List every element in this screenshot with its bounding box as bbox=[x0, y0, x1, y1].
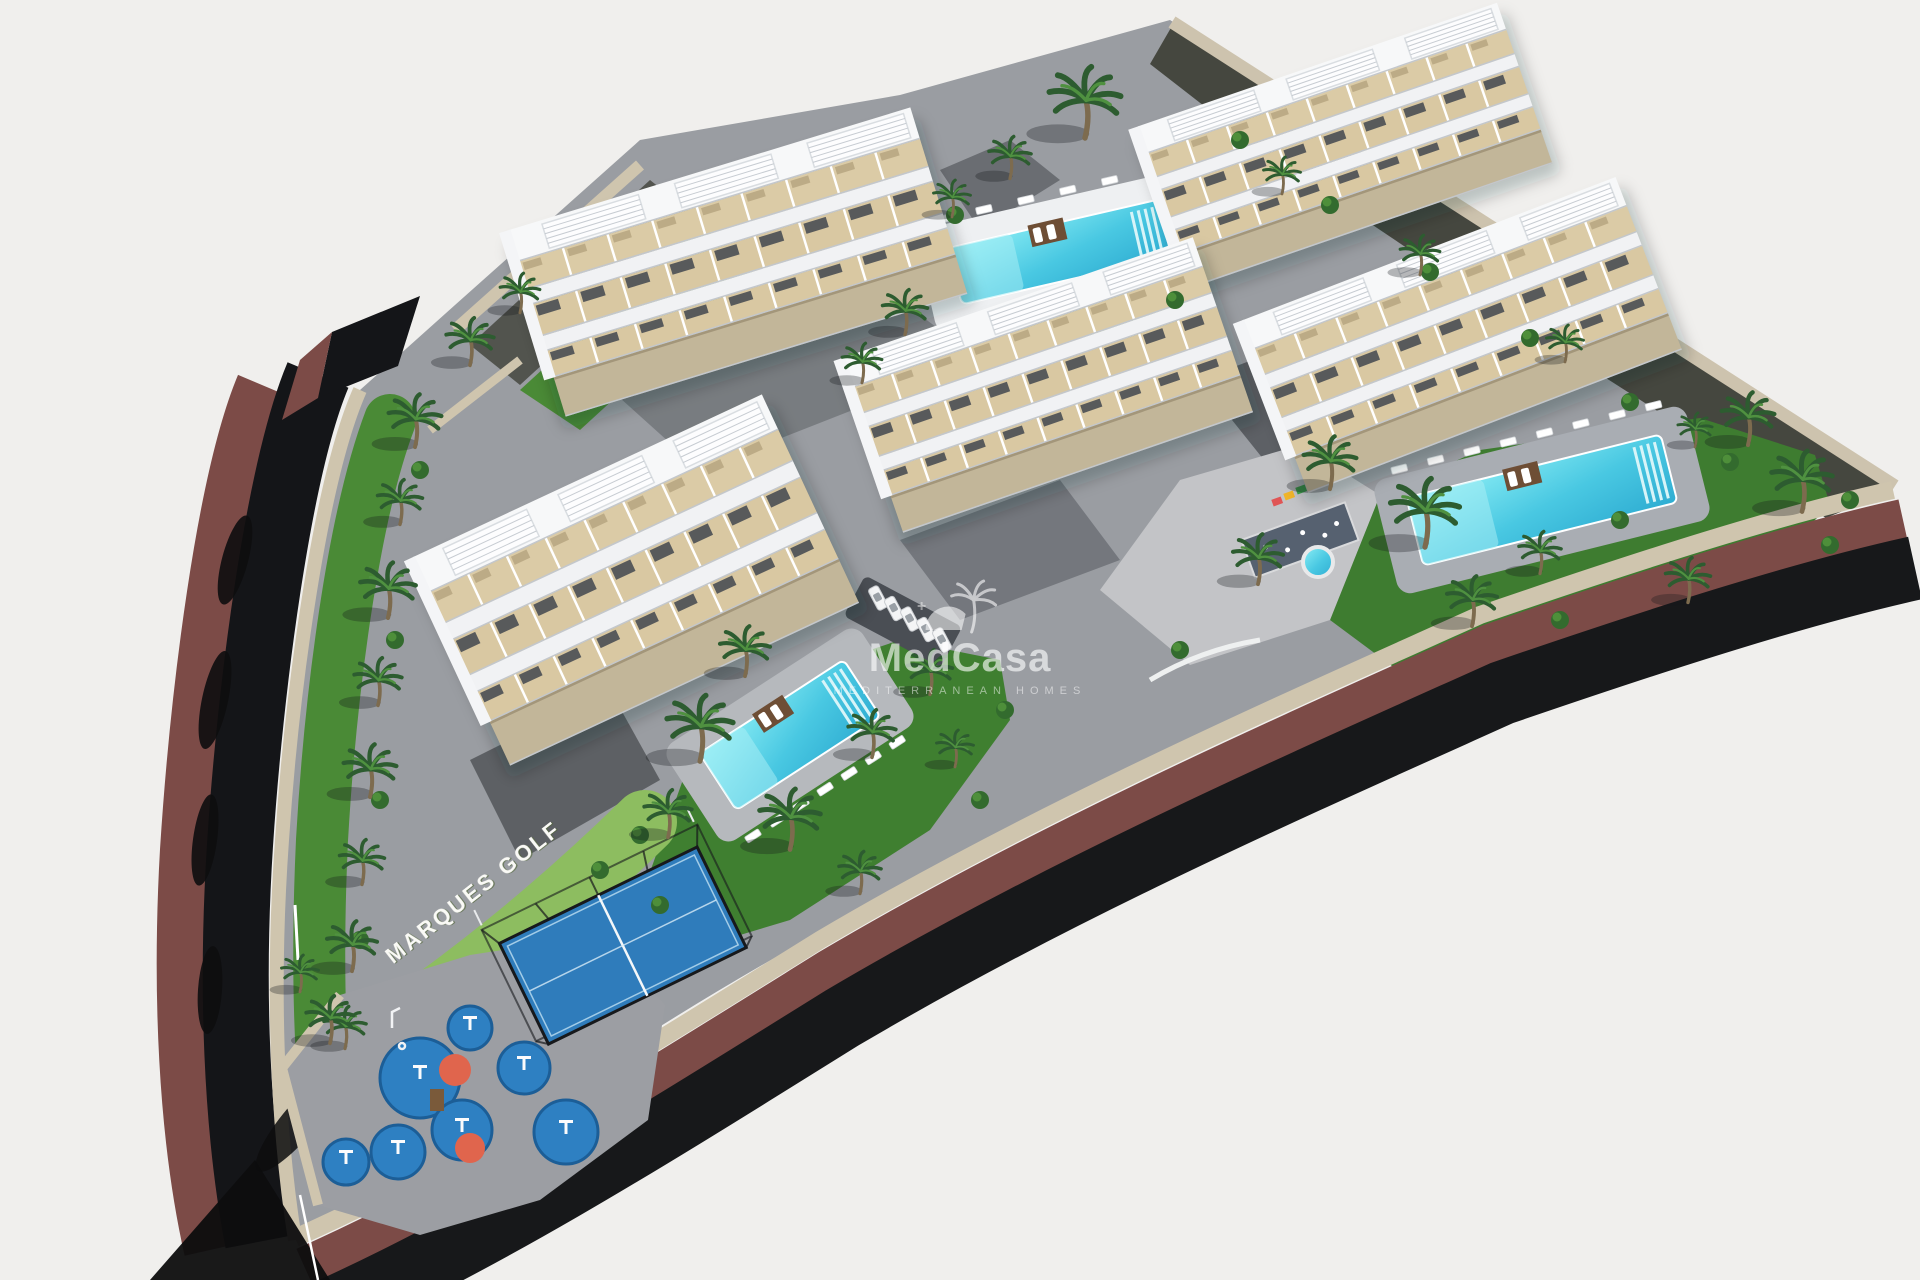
playground-tower bbox=[430, 1089, 444, 1111]
playground-accent-circle bbox=[439, 1054, 471, 1086]
kids-round-pool bbox=[1303, 547, 1333, 577]
playground-accent-circle bbox=[455, 1133, 485, 1163]
site-plan-render: MARQUES GOLF bbox=[0, 0, 1920, 1280]
aerial-render-image: MARQUES GOLF MedCasa MEDITERRANEAN HOMES bbox=[0, 0, 1920, 1280]
